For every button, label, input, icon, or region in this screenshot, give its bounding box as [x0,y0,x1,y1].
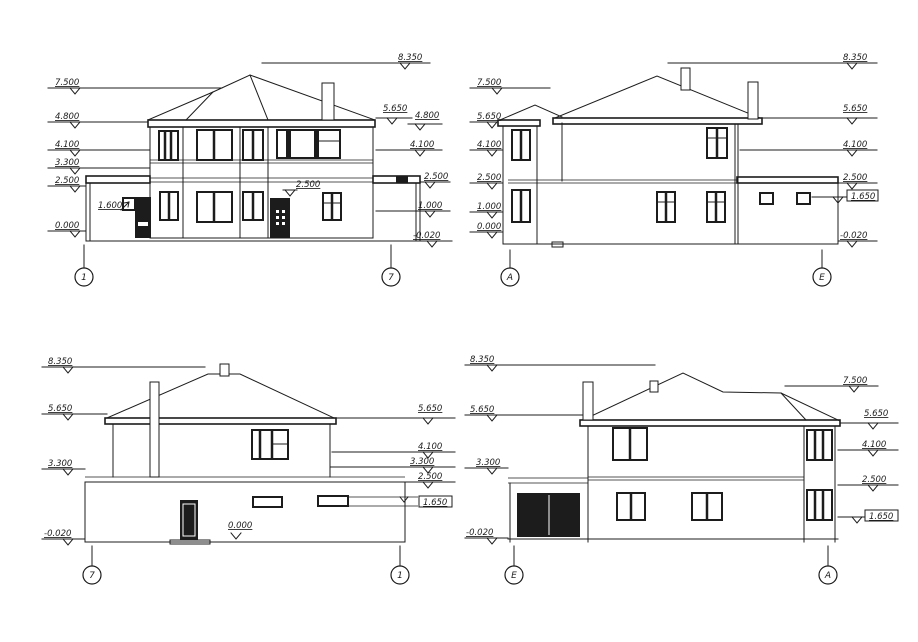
svg-text:8.350: 8.350 [843,53,867,63]
facade-7-1: 7 1 8.350 5.650 3.300 -0.020 5.650 4.100… [42,357,455,584]
level-marks-right: 7.500 5.650 4.100 2.500 1.650 [785,376,898,523]
level-marks-left: 7.500 5.650 4.100 2.500 1.000 0.000 [470,78,550,238]
svg-text:2.500: 2.500 [424,172,448,182]
svg-text:3.300: 3.300 [476,458,500,468]
svg-text:4.100: 4.100 [477,140,501,150]
axis-marker-1: 1 [391,546,409,584]
axis-marker-E: Е [505,546,523,584]
chimney [220,364,229,376]
axis-label: Е [511,571,517,581]
note-zero-level: 0.000 [228,521,252,539]
svg-text:2.500: 2.500 [477,173,501,183]
slit-window [253,497,282,507]
svg-text:-0.020: -0.020 [413,231,440,241]
svg-text:4.800: 4.800 [415,111,439,121]
svg-text:5.650: 5.650 [383,104,407,114]
svg-text:7.500: 7.500 [843,376,867,386]
svg-text:-0.020: -0.020 [466,528,493,538]
svg-text:1.650: 1.650 [423,498,447,508]
axis-marker-A: А [819,546,837,584]
svg-text:8.350: 8.350 [470,355,494,365]
svg-text:4.100: 4.100 [55,140,79,150]
second-floor-windows [159,130,340,160]
svg-text:4.100: 4.100 [410,140,434,150]
axis-marker-7: 7 [83,546,101,584]
first-floor-windows [160,192,341,238]
svg-text:-0.020: -0.020 [44,529,71,539]
axis-label: А [506,273,513,283]
svg-text:0.000: 0.000 [477,222,501,232]
boxed-level-mark: 1.650 [838,510,898,523]
svg-text:2.500: 2.500 [843,173,867,183]
garage-door [517,493,580,537]
chimney [150,382,159,477]
axis-marker-A: А [501,250,519,286]
second-floor [113,424,330,477]
svg-text:2.500: 2.500 [418,472,442,482]
slit-window [318,496,348,506]
svg-text:5.650: 5.650 [48,404,72,414]
axis-marker-7: 7 [382,245,400,286]
roof [105,364,336,424]
svg-text:1.600: 1.600 [98,201,122,211]
svg-text:5.650: 5.650 [470,405,494,415]
roof [580,373,840,426]
first-floor [85,477,418,544]
axis-marker-1: 1 [75,245,93,286]
axis-label: 1 [81,273,87,283]
svg-text:7.500: 7.500 [477,78,501,88]
windows [613,428,832,520]
svg-text:8.350: 8.350 [398,53,422,63]
svg-text:5.650: 5.650 [418,404,442,414]
svg-text:4.100: 4.100 [843,140,867,150]
axis-label: 7 [89,571,95,581]
facade-A-E: А Е 7.500 5.650 4.100 2.500 1.000 0.000 … [470,53,878,286]
svg-text:5.650: 5.650 [843,104,867,114]
roof [148,75,375,127]
svg-text:2.500: 2.500 [862,475,886,485]
windows [512,128,727,222]
entrance-door [270,198,290,238]
svg-text:1.650: 1.650 [869,512,893,522]
ground-line [60,238,428,244]
svg-text:-0.020: -0.020 [840,231,867,241]
axis-marker-E: Е [813,250,831,286]
facade-E-A: Е А 8.350 5.650 3.300 -0.020 7.500 5.650… [465,355,898,584]
axis-label: 1 [397,571,403,581]
svg-text:1.650: 1.650 [851,192,875,202]
elevations-drawing: 1 7 7.500 4.800 4.100 3.300 2.500 0.000 … [0,0,918,642]
svg-text:3.300: 3.300 [55,158,79,168]
svg-text:4.100: 4.100 [418,442,442,452]
chimney [583,382,593,420]
svg-text:1.000: 1.000 [477,202,501,212]
svg-text:8.350: 8.350 [48,357,72,367]
svg-text:2.500: 2.500 [296,180,320,190]
svg-text:2.500: 2.500 [55,176,79,186]
back-door [180,500,198,540]
svg-text:0.000: 0.000 [228,521,252,531]
svg-text:4.800: 4.800 [55,112,79,122]
svg-text:4.100: 4.100 [862,440,886,450]
chimney [748,82,758,119]
walls [503,123,838,247]
svg-text:3.300: 3.300 [410,457,434,467]
axis-label: А [824,571,831,581]
svg-text:0.000: 0.000 [55,221,79,231]
small-window [760,193,773,204]
garage-extension [737,177,838,244]
svg-text:5.650: 5.650 [864,409,888,419]
level-marks-right: 8.350 5.650 4.100 2.500 1.650 -0.020 [668,53,878,247]
chimney [322,83,334,120]
drawing-sheet: 1 7 7.500 4.800 4.100 3.300 2.500 0.000 … [0,0,918,642]
garage [508,478,588,542]
facade-1-7: 1 7 7.500 4.800 4.100 3.300 2.500 0.000 … [48,53,452,286]
svg-text:5.650: 5.650 [477,112,501,122]
chimney [681,68,690,90]
axis-label: Е [819,273,825,283]
boxed-level-mark: 1.650 [812,190,878,203]
chimney [650,381,658,392]
side-door [135,197,151,238]
small-window [797,193,810,204]
svg-text:1.000: 1.000 [418,201,442,211]
roof [498,68,762,126]
level-marks-right: 5.650 4.100 3.300 2.500 1.650 [330,404,455,508]
svg-text:7.500: 7.500 [55,78,79,88]
svg-text:3.300: 3.300 [48,459,72,469]
axis-label: 7 [388,273,394,283]
